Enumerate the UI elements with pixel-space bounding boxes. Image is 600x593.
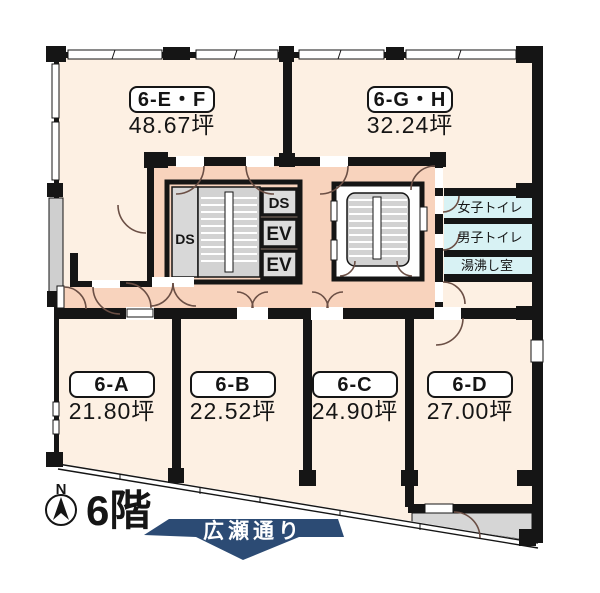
- facility-labels: 女子トイレ 男子トイレ 湯沸し室: [457, 200, 522, 273]
- street-banner: 広瀬通り: [144, 519, 344, 560]
- kitchenette-label: 湯沸し室: [461, 258, 513, 273]
- room-area-6d: 27.00坪: [427, 398, 514, 424]
- room-label-6gh: 6-G・H: [374, 89, 447, 111]
- room-label-6c: 6-C: [337, 374, 372, 396]
- room-label-6a: 6-A: [94, 374, 129, 396]
- room-area-6gh: 32.24坪: [367, 112, 454, 138]
- ds-strip-label: DS: [175, 231, 194, 247]
- room-area-6b: 22.52坪: [190, 398, 277, 424]
- floor-plan-page: DS DS EV EV: [0, 0, 600, 593]
- compass: N: [46, 481, 76, 525]
- ds-box-label: DS: [269, 195, 290, 212]
- room-label-6ef: 6-E・F: [138, 89, 206, 111]
- room-label-6d: 6-D: [452, 374, 487, 396]
- stair-core-right: [331, 184, 427, 279]
- room-label-6b: 6-B: [215, 374, 250, 396]
- ev-box-label-2: EV: [266, 255, 292, 276]
- room-area-6a: 21.80坪: [69, 398, 156, 424]
- stair-core-left: DS DS EV EV: [167, 182, 300, 282]
- floor-plan-canvas: DS DS EV EV: [0, 0, 600, 593]
- mens-toilet-label: 男子トイレ: [457, 230, 522, 245]
- street-banner-label: 広瀬通り: [203, 519, 303, 543]
- room-area-6c: 24.90坪: [312, 398, 399, 424]
- floor-label: 6階: [86, 487, 151, 534]
- ev-box-label-1: EV: [266, 224, 292, 245]
- womens-toilet-label: 女子トイレ: [457, 200, 522, 215]
- room-area-6ef: 48.67坪: [129, 112, 216, 138]
